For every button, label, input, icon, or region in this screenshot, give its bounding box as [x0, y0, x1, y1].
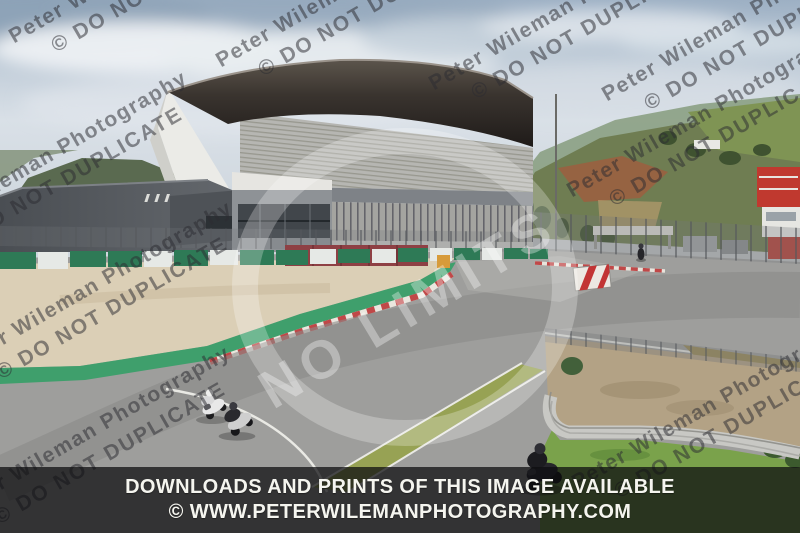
trackday-photo: NO LIMITS Peter Wileman Photography© DO … [0, 0, 800, 533]
banner-website-url[interactable]: © WWW.PETERWILEMANPHOTOGRAPHY.COM [169, 501, 632, 524]
scene [0, 0, 800, 533]
banner-downloads-text: DOWNLOADS AND PRINTS OF THIS IMAGE AVAIL… [125, 476, 675, 499]
footer-banner: DOWNLOADS AND PRINTS OF THIS IMAGE AVAIL… [0, 467, 800, 533]
red-white-marker-board [573, 264, 611, 291]
distant-building [694, 140, 720, 149]
bush [561, 357, 583, 375]
yellow-panel [437, 255, 450, 268]
